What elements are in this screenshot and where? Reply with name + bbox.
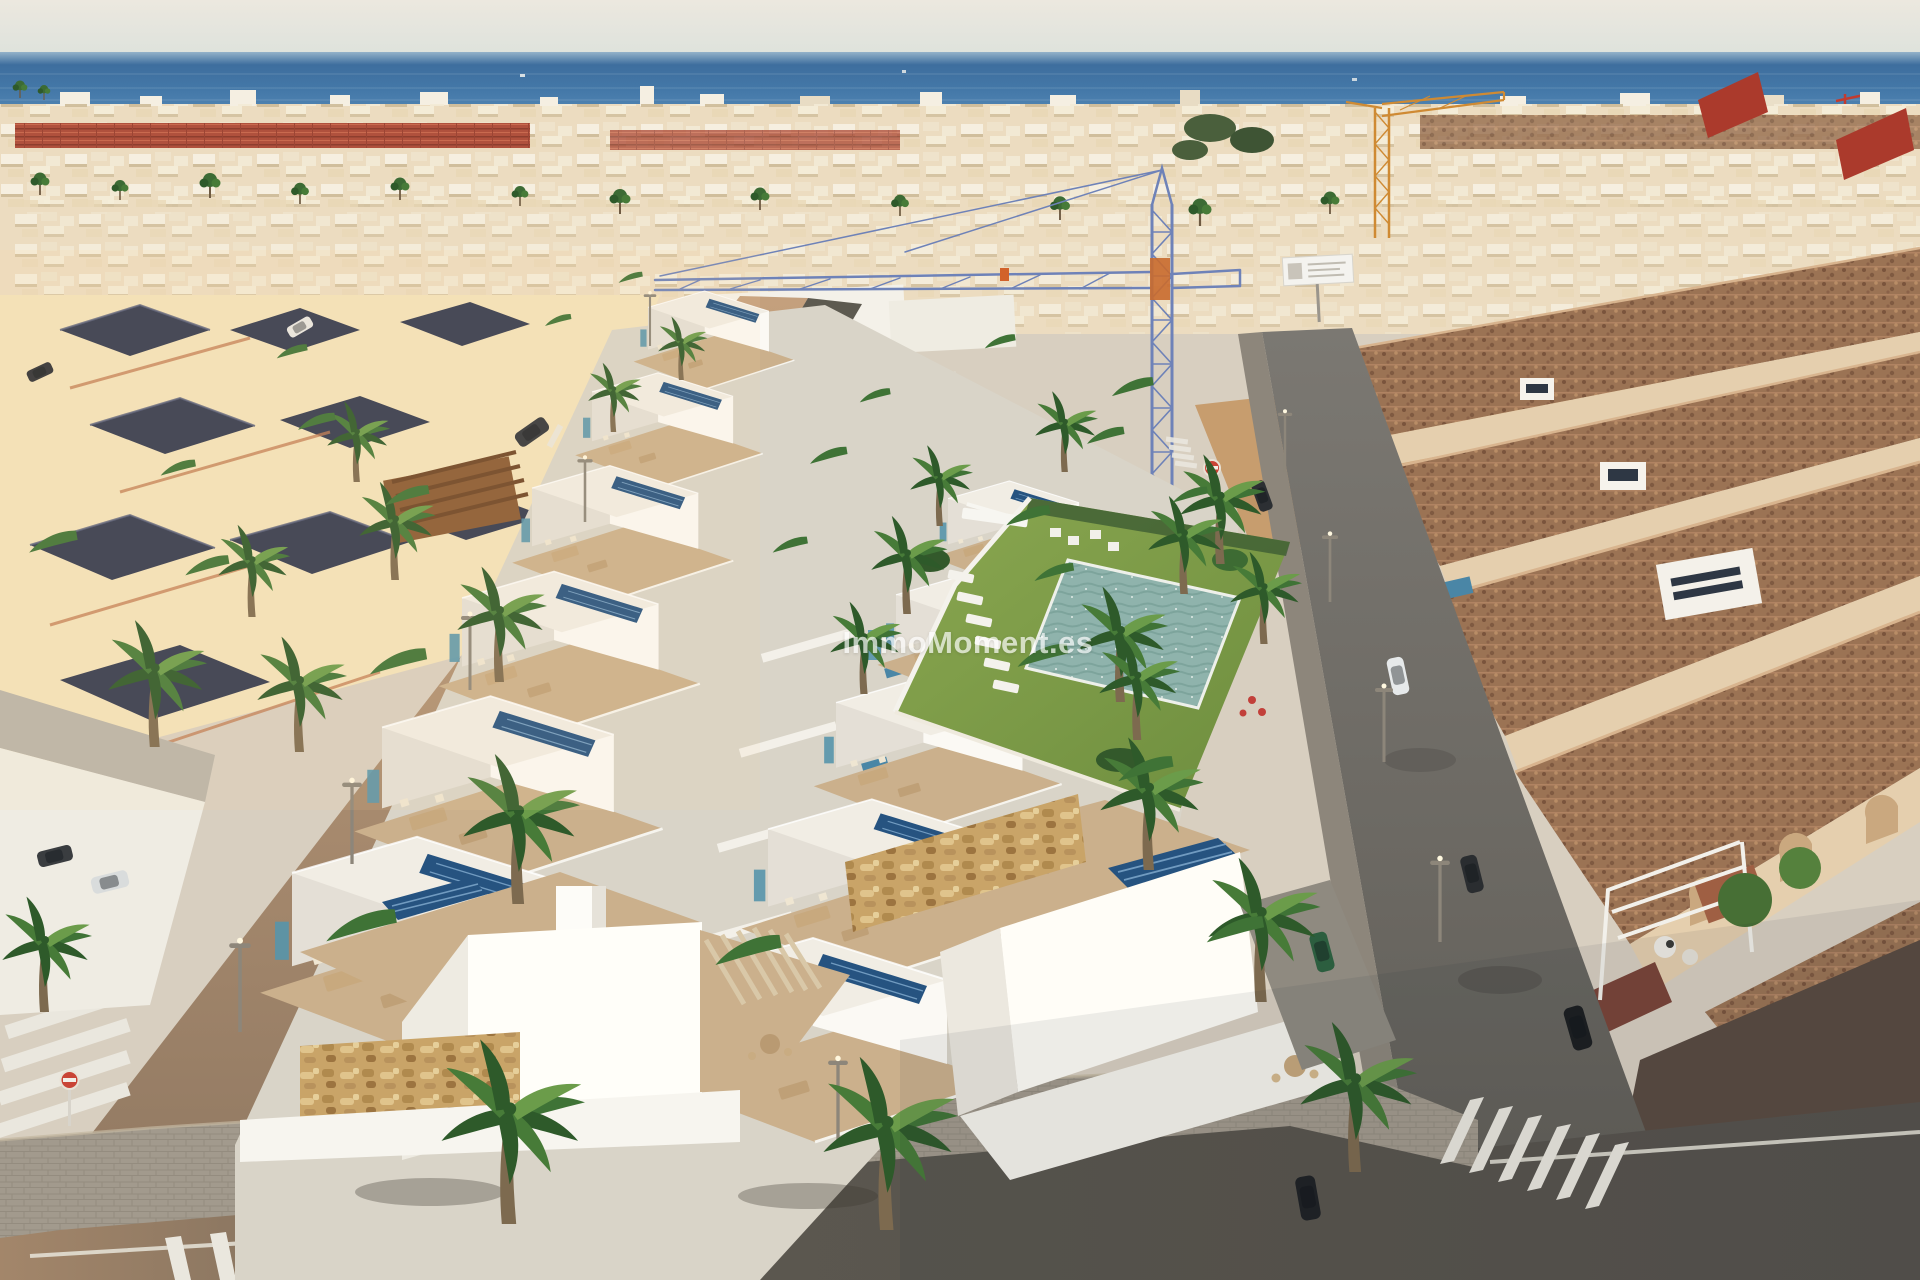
patio-table [760, 1034, 780, 1054]
garden-ornament [1682, 949, 1698, 965]
crane-worker [1000, 268, 1009, 281]
palm-shadow [355, 1178, 505, 1206]
garden-ornament [1654, 936, 1676, 958]
red-roof-row [15, 123, 530, 148]
boat [520, 74, 525, 77]
red-roof-row [610, 130, 900, 150]
sky [0, 0, 1920, 58]
scene-canvas [0, 0, 1920, 1280]
aerial-render-photo: ImmoMoment.es [0, 0, 1920, 1280]
crane-cab [1150, 258, 1170, 300]
no-entry-sign [61, 1071, 79, 1126]
palm-shadow [738, 1183, 878, 1209]
flower-bed [1240, 696, 1267, 717]
boat [1352, 78, 1357, 81]
boat [902, 70, 906, 73]
